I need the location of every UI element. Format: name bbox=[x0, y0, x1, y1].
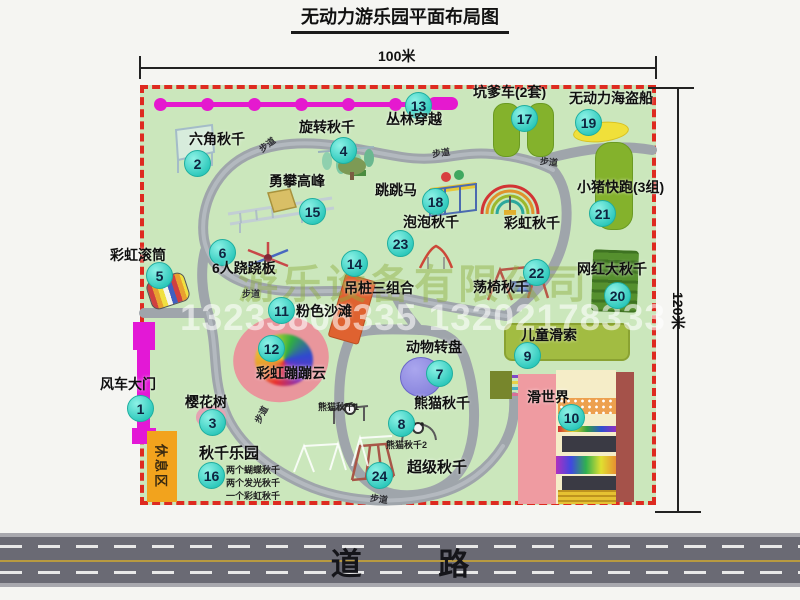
marker-24: 24 bbox=[366, 462, 393, 489]
zipline-dot bbox=[295, 98, 308, 111]
label-panda-swing-1: 熊猫秋千1 bbox=[318, 402, 359, 412]
marker-4: 4 bbox=[330, 137, 357, 164]
footpath-tag: 步道 bbox=[242, 287, 260, 300]
label-22: 荡椅秋千 bbox=[473, 280, 529, 295]
rest-area: 休息区 bbox=[147, 431, 177, 502]
label-3: 樱花树 bbox=[185, 395, 227, 410]
label-13: 丛林穿越 bbox=[386, 112, 442, 127]
zipline-end-platform bbox=[428, 97, 458, 110]
label-18: 跳跳马 bbox=[375, 183, 417, 198]
footpath-tag: 步道 bbox=[431, 145, 451, 160]
height-dimension-label: 120米 bbox=[668, 292, 688, 329]
road: 道 路 bbox=[0, 533, 800, 587]
label-11: 粉色沙滩 bbox=[296, 304, 352, 319]
marker-15: 15 bbox=[299, 198, 326, 225]
footpath-tag: 步道 bbox=[369, 491, 389, 506]
marker-18: 18 bbox=[422, 188, 449, 215]
label-rainbow-swing: 彩虹秋千 bbox=[504, 216, 560, 231]
marker-9: 9 bbox=[514, 342, 541, 369]
label-12: 彩虹蹦蹦云 bbox=[256, 366, 326, 381]
label-6: 6人跷跷板 bbox=[212, 261, 276, 276]
label-20: 网红大秋千 bbox=[577, 262, 647, 277]
width-dimension-line bbox=[140, 67, 656, 69]
swing-paradise-note-3: 一个彩虹秋千 bbox=[226, 491, 280, 501]
label-23: 泡泡秋千 bbox=[403, 215, 459, 230]
label-2: 六角秋千 bbox=[189, 132, 245, 147]
marker-2: 2 bbox=[184, 150, 211, 177]
width-dim-tick-right bbox=[655, 56, 657, 79]
rest-area-label: 休息区 bbox=[153, 444, 172, 489]
label-8: 熊猫秋千 bbox=[414, 396, 470, 411]
label-1: 风车大门 bbox=[100, 377, 156, 392]
marker-23: 23 bbox=[387, 230, 414, 257]
road-edge-top bbox=[0, 533, 800, 537]
label-19: 无动力海盗船 bbox=[569, 91, 653, 106]
windmill-gate-top bbox=[133, 322, 155, 350]
zipline-dot bbox=[201, 98, 214, 111]
watermark-phone: 13233806335 13202178333 bbox=[180, 297, 666, 339]
label-9: 儿童滑索 bbox=[521, 328, 577, 343]
marker-16: 16 bbox=[198, 462, 225, 489]
label-10: 滑世界 bbox=[527, 390, 569, 405]
label-panda-swing-2: 熊猫秋千2 bbox=[386, 440, 427, 450]
marker-14: 14 bbox=[341, 250, 368, 277]
zipline-dot bbox=[342, 98, 355, 111]
marker-21: 21 bbox=[589, 200, 616, 227]
slide-darkred-strip bbox=[616, 372, 634, 502]
height-dim-tick-bottom bbox=[655, 511, 701, 513]
label-4: 旋转秋千 bbox=[299, 120, 355, 135]
marker-19: 19 bbox=[575, 109, 602, 136]
slide-dark-band-1 bbox=[562, 436, 618, 452]
swing-paradise-note-2: 两个发光秋千 bbox=[226, 478, 280, 488]
label-21: 小猪快跑(3组) bbox=[577, 180, 664, 195]
road-label: 道 路 bbox=[0, 539, 800, 584]
marker-5: 5 bbox=[146, 262, 173, 289]
marker-12: 12 bbox=[258, 335, 285, 362]
marker-20: 20 bbox=[604, 282, 631, 309]
marker-3: 3 bbox=[199, 409, 226, 436]
swing-paradise-note-1: 两个蝴蝶秋千 bbox=[226, 465, 280, 475]
page-title: 无动力游乐园平面布局图 bbox=[291, 6, 509, 34]
label-7: 动物转盘 bbox=[406, 340, 462, 355]
width-dimension-label: 100米 bbox=[378, 46, 415, 66]
page-title-wrap: 无动力游乐园平面布局图 bbox=[0, 6, 800, 34]
marker-10: 10 bbox=[558, 404, 585, 431]
footpath-tag: 步道 bbox=[539, 154, 558, 169]
label-24: 超级秋千 bbox=[407, 460, 467, 477]
marker-17: 17 bbox=[511, 105, 538, 132]
zipline-dot bbox=[154, 98, 167, 111]
slide-rainbow-band bbox=[556, 456, 616, 474]
height-dim-tick-top bbox=[648, 87, 694, 89]
park-plan-canvas: 无动力游乐园平面布局图 100米 120米 bbox=[0, 0, 800, 600]
slide-wavy-band bbox=[558, 490, 616, 504]
marker-8: 8 bbox=[388, 410, 415, 437]
marker-1: 1 bbox=[127, 395, 154, 422]
marker-11: 11 bbox=[268, 297, 295, 324]
zipline-dot bbox=[248, 98, 261, 111]
label-16: 秋千乐园 bbox=[199, 446, 259, 463]
label-14: 吊桩三组合 bbox=[344, 281, 414, 296]
marker-7: 7 bbox=[426, 360, 453, 387]
label-15: 勇攀高峰 bbox=[269, 174, 325, 189]
zipline-dot bbox=[389, 98, 402, 111]
label-17: 坑爹车(2套) bbox=[473, 85, 546, 100]
kids-zipline-tower bbox=[490, 371, 512, 399]
label-5: 彩虹滚筒 bbox=[110, 248, 166, 263]
width-dim-tick-left bbox=[139, 56, 141, 79]
slide-dark-band-2 bbox=[562, 476, 618, 490]
